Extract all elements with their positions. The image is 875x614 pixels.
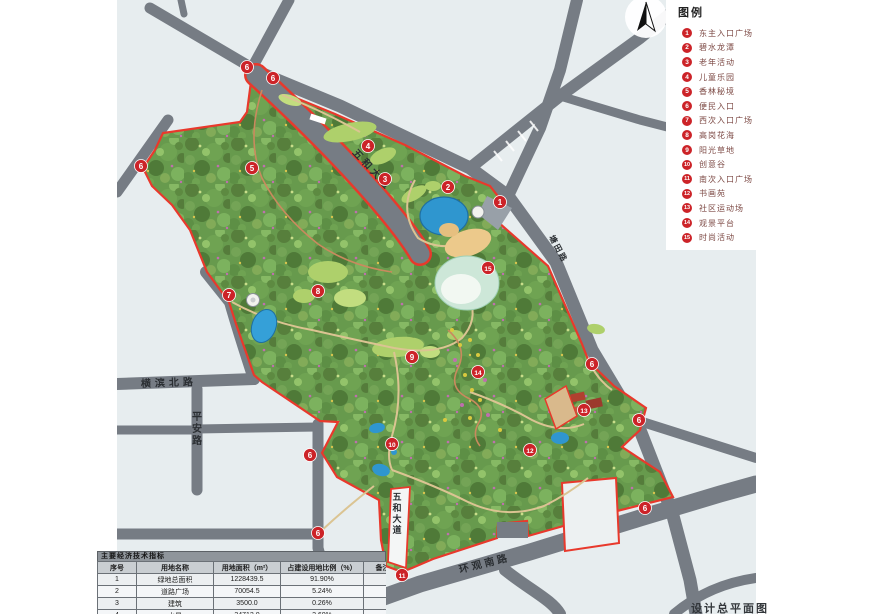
svg-text:6: 6 [316,529,321,538]
table-cell [364,586,387,598]
legend-item-number: 1 [682,28,692,38]
legend-item-number: 15 [682,233,692,243]
legend-item-number: 3 [682,57,692,67]
table-cell: 2.60% [281,610,364,614]
map-marker-6: 6 [267,72,280,85]
svg-text:9: 9 [410,353,415,362]
table-cell: 3500.0 [214,598,281,610]
table-header: 用地面积（m²） [214,562,281,574]
map-marker-5: 5 [246,162,259,175]
master-plan-page: 横滨北路平安路五和大道五和大道环观南路塘田路 12345789101112131… [0,0,875,614]
road-label: 平安路 [192,411,203,447]
map-marker-3: 3 [379,173,392,186]
table-cell: 建筑 [137,598,214,610]
legend-item-1: 1东主入口广场 [682,26,875,41]
table-cell: 70054.5 [214,586,281,598]
map-marker-6: 6 [304,449,317,462]
road-label: 五和大道 [391,492,401,535]
legend-item-number: 2 [682,43,692,53]
legend-item-number: 9 [682,145,692,155]
svg-text:6: 6 [271,74,276,83]
svg-text:12: 12 [526,448,534,455]
svg-text:8: 8 [316,287,321,296]
legend-item-4: 4儿童乐园 [682,70,875,85]
table-row: 4水景34712.02.60% [98,610,387,614]
table-header: 序号 [98,562,137,574]
legend-item-7: 7西次入口广场 [682,114,875,129]
legend-item-number: 5 [682,87,692,97]
svg-text:3: 3 [383,175,388,184]
legend-item-label: 时尚活动 [699,232,735,243]
table-header: 占建设用地比例（%） [281,562,364,574]
map-marker-12: 12 [524,444,537,457]
sheet-title: 设计总平面图 [691,600,769,614]
legend-item-9: 9阳光草地 [682,143,875,158]
svg-text:6: 6 [245,63,250,72]
svg-text:5: 5 [250,164,255,173]
legend-item-3: 3老年活动 [682,55,875,70]
table-cell: 道路广场 [137,586,214,598]
legend-item-11: 11南次入口广场 [682,172,875,187]
legend-item-label: 儿童乐园 [699,72,735,83]
legend-item-number: 7 [682,116,692,126]
legend-item-number: 4 [682,72,692,82]
table-cell: 1228439.5 [214,574,281,586]
map-marker-15: 15 [482,262,495,275]
legend-item-label: 老年活动 [699,57,735,68]
table-cell: 4 [98,610,137,614]
legend-items: 1东主入口广场2碧水龙潭3老年活动4儿童乐园5香林秘境6便民入口7西次入口广场8… [666,26,875,245]
legend-item-label: 观景平台 [699,218,735,229]
table-row: 3建筑3500.00.26% [98,598,387,610]
table-cell: 5.24% [281,586,364,598]
legend-item-label: 书画苑 [699,188,726,199]
legend-item-5: 5香林秘境 [682,84,875,99]
legend-item-label: 创意谷 [699,159,726,170]
legend-item-number: 14 [682,218,692,228]
legend-title: 图例 [678,4,875,20]
legend-item-label: 便民入口 [699,101,735,112]
legend-item-number: 11 [682,174,692,184]
legend-item-number: 6 [682,101,692,111]
table-cell: 水景 [137,610,214,614]
map-marker-6: 6 [135,160,148,173]
reserved-parcel [562,478,619,551]
svg-text:6: 6 [643,504,648,513]
legend-panel: 图例 1东主入口广场2碧水龙潭3老年活动4儿童乐园5香林秘境6便民入口7西次入口… [666,0,875,250]
table-cell: 2 [98,586,137,598]
indicators-table: 主要经济技术指标 序号用地名称用地面积（m²）占建设用地比例（%）备注 1绿地总… [97,551,386,614]
road-bay [497,522,528,538]
indicators-table-grid: 序号用地名称用地面积（m²）占建设用地比例（%）备注 1绿地总面积1228439… [97,561,386,614]
svg-text:6: 6 [308,451,313,460]
map-marker-4: 4 [362,140,375,153]
legend-item-10: 10创意谷 [682,157,875,172]
table-cell [364,574,387,586]
svg-text:7: 7 [227,291,232,300]
legend-item-label: 东主入口广场 [699,28,753,39]
map-marker-1: 1 [494,196,507,209]
map-marker-13: 13 [578,404,591,417]
table-header: 备注 [364,562,387,574]
legend-item-12: 12书画苑 [682,187,875,202]
table-row: 2道路广场70054.55.24% [98,586,387,598]
map-marker-6: 6 [639,502,652,515]
legend-item-label: 社区运动场 [699,203,744,214]
legend-item-6: 6便民入口 [682,99,875,114]
svg-text:15: 15 [484,266,492,273]
svg-text:6: 6 [637,416,642,425]
map-marker-11: 11 [396,569,409,582]
map-marker-8: 8 [312,285,325,298]
table-cell: 91.90% [281,574,364,586]
map-marker-14: 14 [472,366,485,379]
legend-item-number: 10 [682,160,692,170]
table-cell [364,610,387,614]
legend-item-13: 13社区运动场 [682,201,875,216]
map-marker-2: 2 [442,181,455,194]
legend-item-number: 8 [682,130,692,140]
legend-item-15: 15时尚活动 [682,230,875,245]
legend-item-label: 阳光草地 [699,145,735,156]
map-marker-6: 6 [312,527,325,540]
table-cell [364,598,387,610]
map-marker-10: 10 [386,438,399,451]
svg-text:4: 4 [366,142,371,151]
svg-text:10: 10 [388,442,396,449]
map-marker-9: 9 [406,351,419,364]
table-cell: 1 [98,574,137,586]
legend-item-label: 香林秘境 [699,86,735,97]
table-cell: 0.26% [281,598,364,610]
legend-item-14: 14观景平台 [682,216,875,231]
map-marker-6: 6 [241,61,254,74]
table-cell: 34712.0 [214,610,281,614]
svg-text:6: 6 [590,360,595,369]
entrance-rotunda [472,206,484,218]
table-row: 1绿地总面积1228439.591.90% [98,574,387,586]
svg-text:14: 14 [474,370,482,377]
legend-item-number: 13 [682,203,692,213]
legend-item-label: 南次入口广场 [699,174,753,185]
legend-item-8: 8高岗花海 [682,128,875,143]
table-cell: 绿地总面积 [137,574,214,586]
legend-item-2: 2碧水龙潭 [682,41,875,56]
svg-text:1: 1 [498,198,503,207]
map-marker-7: 7 [223,289,236,302]
indicators-table-title: 主要经济技术指标 [97,551,386,561]
svg-text:6: 6 [139,162,144,171]
table-cell: 3 [98,598,137,610]
legend-item-number: 12 [682,189,692,199]
svg-text:13: 13 [580,408,588,415]
legend-item-label: 西次入口广场 [699,115,753,126]
legend-item-label: 碧水龙潭 [699,42,735,53]
map-marker-6: 6 [633,414,646,427]
map-marker-6: 6 [586,358,599,371]
svg-text:11: 11 [399,573,406,580]
svg-text:2: 2 [446,183,451,192]
table-header: 用地名称 [137,562,214,574]
legend-item-label: 高岗花海 [699,130,735,141]
